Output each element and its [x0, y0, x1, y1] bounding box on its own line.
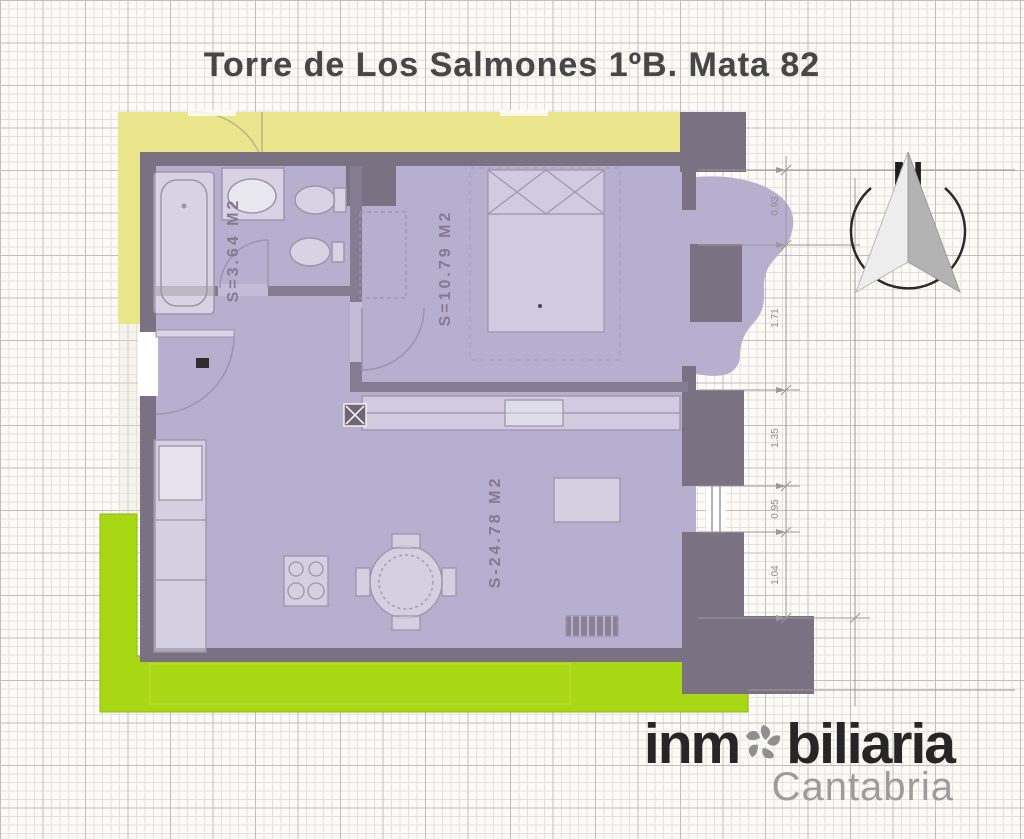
- dim-1-35: 1.35: [770, 428, 781, 448]
- dim-1-71: 1.71: [770, 308, 781, 328]
- doormat: [566, 616, 618, 636]
- window-right: [706, 486, 726, 532]
- compass-needle-left: [856, 152, 908, 292]
- brand-logo: inm biliaria Cantabria: [644, 714, 954, 807]
- compass-needle-right: [908, 152, 960, 292]
- bathroom-area-label: S=3.64 M2: [225, 198, 242, 303]
- divider-counter: [344, 396, 680, 430]
- chair: [392, 616, 420, 630]
- bed: [488, 170, 604, 332]
- stove: [284, 556, 328, 606]
- chair: [392, 534, 420, 548]
- bathtub: [154, 172, 214, 314]
- dining-table: [370, 546, 442, 618]
- dim-0-95: 0.95: [770, 499, 781, 519]
- brand-prefix: inm: [644, 716, 739, 773]
- bidet: [290, 238, 330, 266]
- side-table: [554, 478, 620, 522]
- living-area-label: S-24.78 M2: [487, 476, 504, 589]
- bedroom-area-label: S=10.79 M2: [437, 210, 454, 327]
- dim-1-04: 1.04: [770, 565, 781, 585]
- chair: [442, 568, 456, 596]
- north-compass: N: [851, 152, 965, 292]
- chair: [356, 568, 370, 596]
- entry-marker: [196, 358, 209, 368]
- floor-plan-page: Torre de Los Salmones 1ºB. Mata 82: [0, 0, 1024, 839]
- fridge: [159, 446, 202, 500]
- toilet: [295, 186, 335, 214]
- dim-0-93: 0.93: [770, 196, 781, 216]
